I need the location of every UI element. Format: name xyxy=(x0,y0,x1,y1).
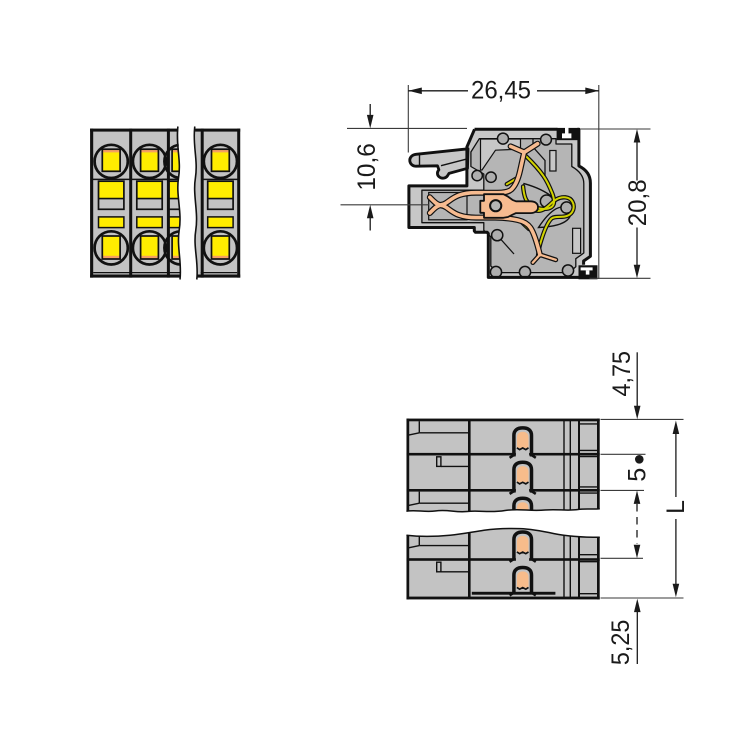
svg-text:20,8: 20,8 xyxy=(624,179,652,226)
svg-text:26,45: 26,45 xyxy=(471,77,531,105)
svg-text:4,75: 4,75 xyxy=(608,351,636,397)
svg-text:5: 5 xyxy=(624,468,652,482)
svg-text:L: L xyxy=(662,500,690,514)
svg-text:10,6: 10,6 xyxy=(353,143,381,191)
svg-text:5,25: 5,25 xyxy=(607,620,635,666)
